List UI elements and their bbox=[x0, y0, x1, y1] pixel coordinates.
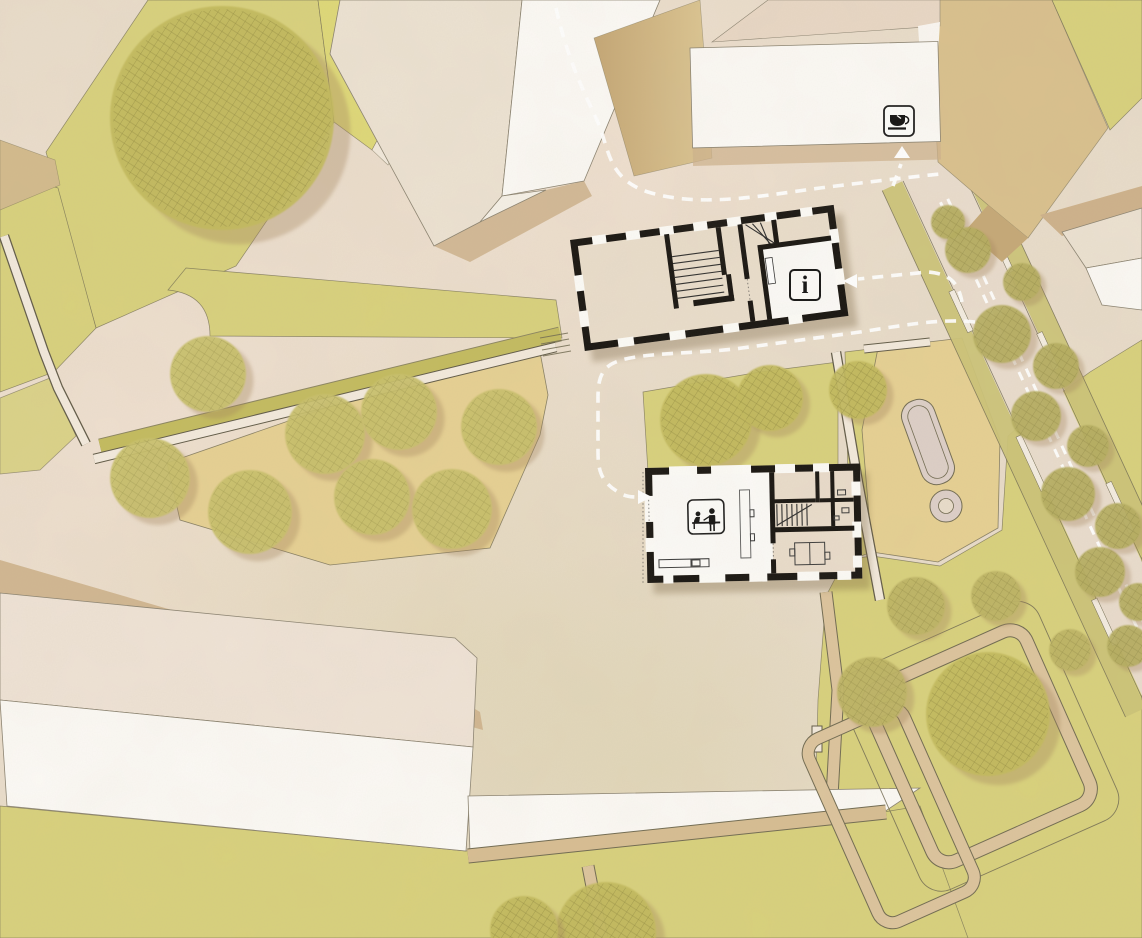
coffee-cup-icon bbox=[884, 106, 914, 136]
site-plan: i bbox=[0, 0, 1142, 938]
info-marker-text: i bbox=[802, 272, 809, 299]
cafe-building bbox=[690, 42, 941, 166]
entrance-building-plan bbox=[644, 462, 871, 594]
info-icon: i bbox=[790, 270, 820, 300]
reception-desk-icon bbox=[688, 499, 725, 534]
